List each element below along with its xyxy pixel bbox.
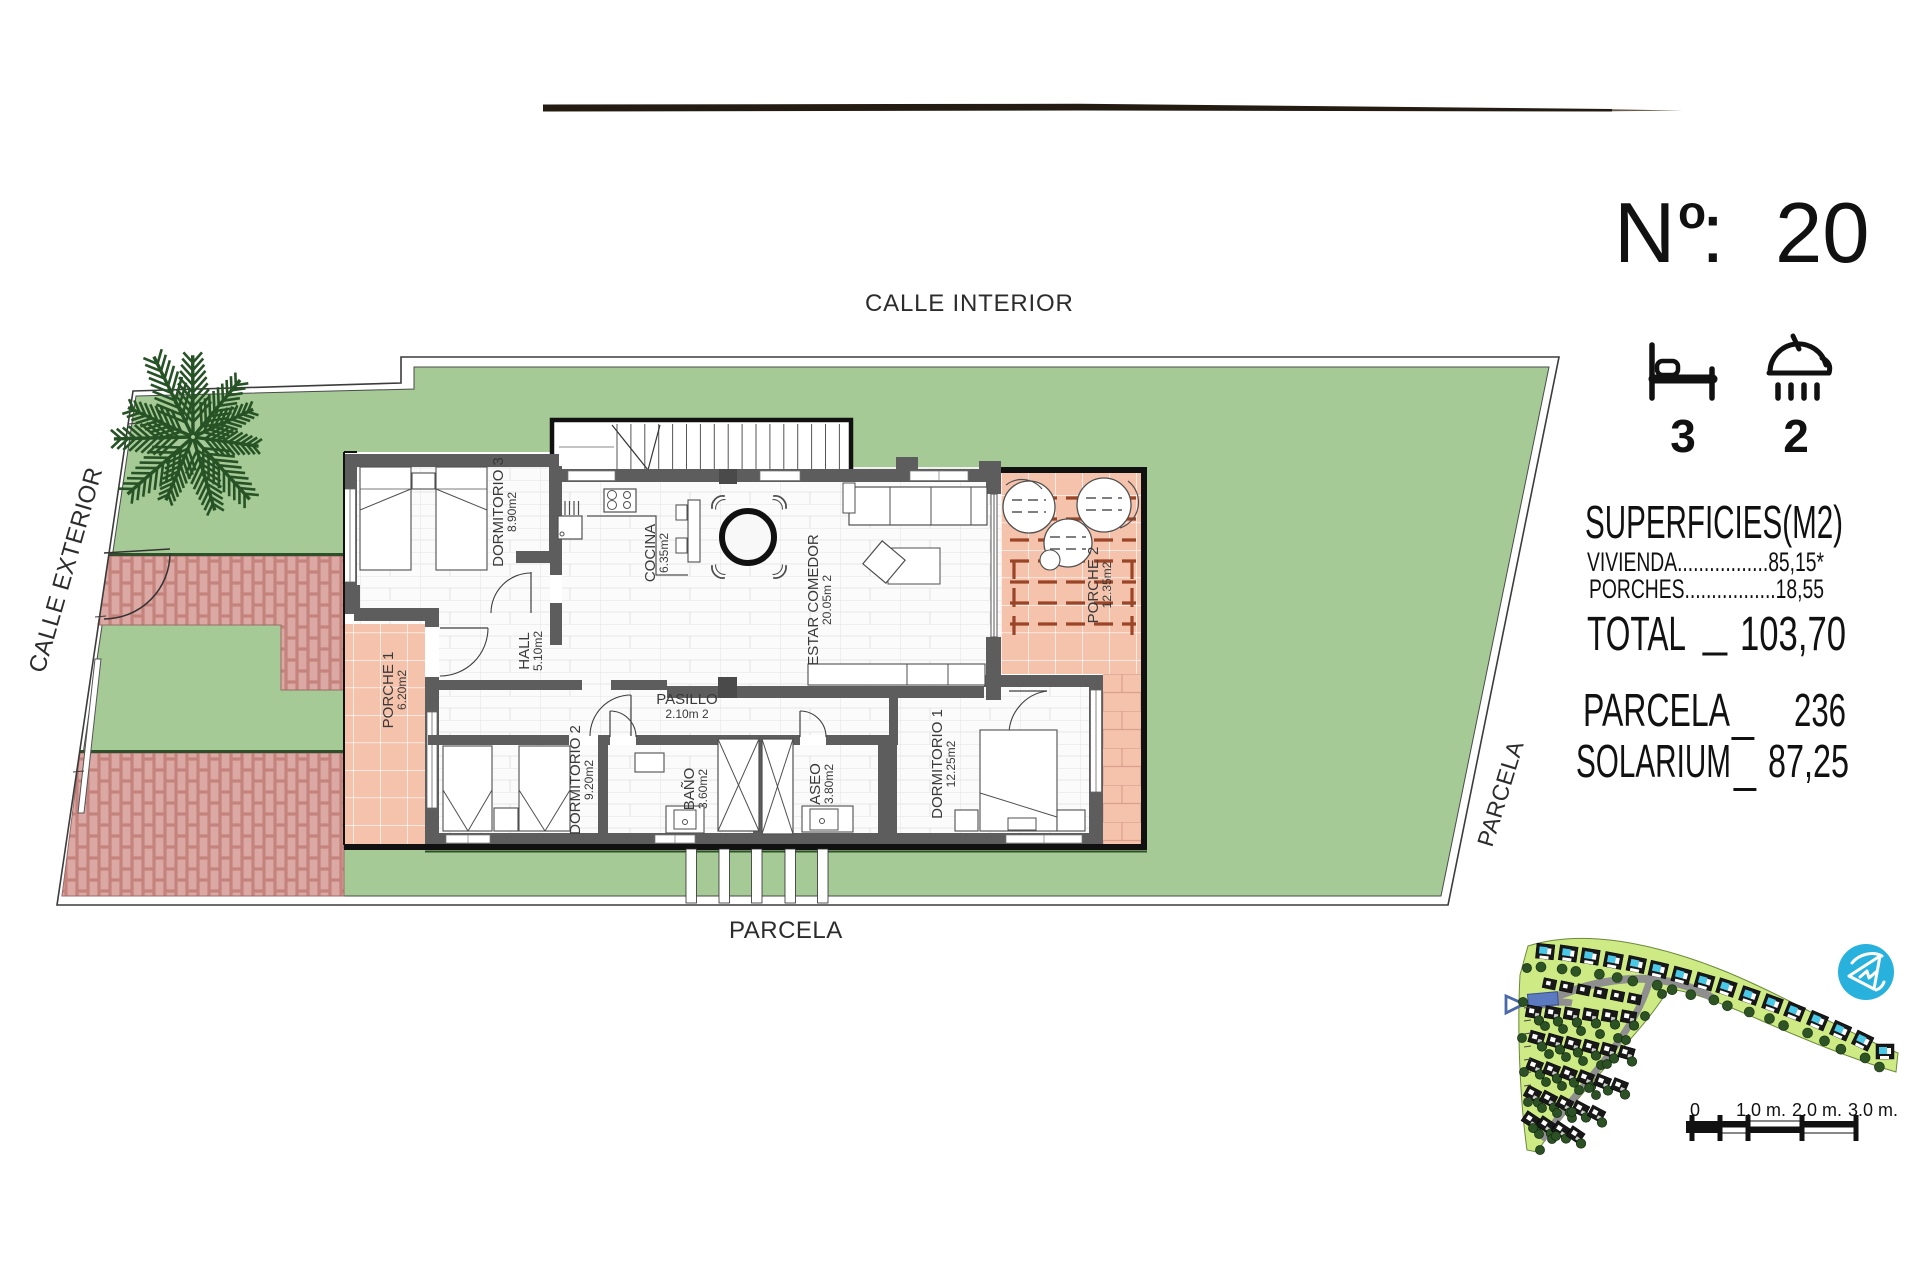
svg-text:236: 236 <box>1794 684 1846 736</box>
svg-text:6.20m2: 6.20m2 <box>395 670 409 710</box>
svg-text:5.10m2: 5.10m2 <box>531 631 545 671</box>
svg-text:PORCHES.................18,55: PORCHES.................18,55 <box>1589 574 1824 604</box>
svg-text:12.25m2: 12.25m2 <box>944 740 958 787</box>
svg-text:103,70: 103,70 <box>1740 608 1846 661</box>
svg-text:SUPERFICIES(M2): SUPERFICIES(M2) <box>1585 496 1843 548</box>
svg-text:9.20m2: 9.20m2 <box>582 760 596 800</box>
svg-text::: : <box>1701 186 1725 281</box>
svg-text:_: _ <box>1733 740 1757 792</box>
svg-text:SOLARIUM: SOLARIUM <box>1576 735 1731 787</box>
svg-text:1.0 m.: 1.0 m. <box>1736 1100 1786 1120</box>
svg-text:6.35m2: 6.35m2 <box>657 533 671 573</box>
svg-text:PARCELA: PARCELA <box>1583 684 1730 736</box>
svg-text:3: 3 <box>1670 410 1696 462</box>
svg-text:_: _ <box>1731 689 1755 741</box>
svg-text:PARCELA: PARCELA <box>729 917 843 944</box>
svg-text:TOTAL: TOTAL <box>1587 608 1686 661</box>
svg-text:20.05m 2: 20.05m 2 <box>820 575 834 625</box>
svg-text:PASILLO: PASILLO <box>656 691 717 708</box>
svg-text:8.90m2: 8.90m2 <box>505 492 519 532</box>
svg-text:12.35m2: 12.35m2 <box>1100 561 1114 608</box>
svg-text:2: 2 <box>1783 410 1809 462</box>
svg-text:20: 20 <box>1775 186 1870 281</box>
svg-text:N: N <box>1614 186 1675 281</box>
svg-text:87,25: 87,25 <box>1768 735 1849 787</box>
svg-text:2.10m 2: 2.10m 2 <box>665 707 709 721</box>
svg-text:CALLE INTERIOR: CALLE INTERIOR <box>865 290 1074 317</box>
svg-text:_: _ <box>1702 604 1728 657</box>
svg-text:3.60m2: 3.60m2 <box>696 769 710 809</box>
svg-text:VIVIENDA.................85,15: VIVIENDA.................85,15* <box>1587 547 1824 577</box>
svg-text:3.80m2: 3.80m2 <box>822 764 836 804</box>
